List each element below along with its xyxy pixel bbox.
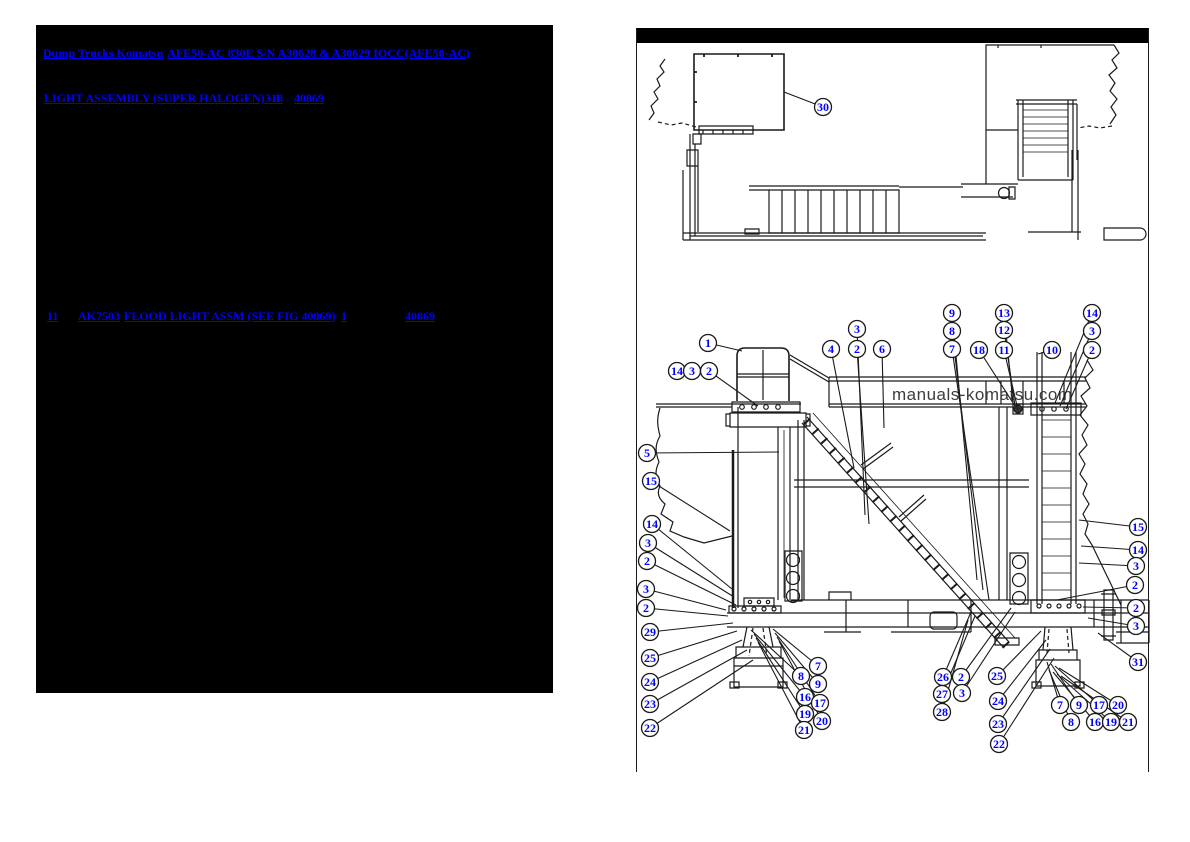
leader-line <box>646 589 726 610</box>
svg-text:10: 10 <box>1046 343 1058 357</box>
svg-text:17: 17 <box>814 696 826 710</box>
callout-19[interactable]: 19 <box>1103 714 1120 731</box>
leader-line <box>650 631 737 658</box>
svg-text:3: 3 <box>1089 324 1095 338</box>
svg-text:31: 31 <box>1132 655 1144 669</box>
callout-31[interactable]: 31 <box>1130 654 1147 671</box>
svg-text:3: 3 <box>1133 619 1139 633</box>
svg-text:27: 27 <box>936 687 948 701</box>
svg-text:9: 9 <box>815 677 821 691</box>
svg-text:28: 28 <box>936 705 948 719</box>
leader-line <box>651 481 730 531</box>
callout-15[interactable]: 15 <box>643 473 660 490</box>
callout-20[interactable]: 20 <box>814 713 831 730</box>
torn-edge-frame <box>656 408 732 543</box>
callout-6[interactable]: 6 <box>874 341 891 358</box>
part-row-qty-link[interactable]: 1 <box>341 309 347 324</box>
callout-8[interactable]: 8 <box>944 323 961 340</box>
callout-8[interactable]: 8 <box>793 668 810 685</box>
svg-text:2: 2 <box>958 670 964 684</box>
svg-text:7: 7 <box>815 659 821 673</box>
svg-text:2: 2 <box>706 364 712 378</box>
svg-text:8: 8 <box>949 324 955 338</box>
svg-text:14: 14 <box>671 364 683 378</box>
callout-13[interactable]: 13 <box>996 305 1013 322</box>
svg-text:25: 25 <box>991 669 1003 683</box>
svg-text:21: 21 <box>798 723 810 737</box>
svg-text:4: 4 <box>828 342 834 356</box>
leader-line <box>857 349 869 524</box>
callout-20[interactable]: 20 <box>1110 697 1127 714</box>
callout-17[interactable]: 17 <box>812 695 829 712</box>
leader-line <box>999 658 1054 744</box>
svg-text:8: 8 <box>798 669 804 683</box>
svg-text:30: 30 <box>817 100 829 114</box>
svg-text:20: 20 <box>816 714 828 728</box>
leader-line <box>952 331 983 590</box>
callout-21[interactable]: 21 <box>1120 714 1137 731</box>
svg-text:26: 26 <box>937 670 949 684</box>
callout-14[interactable]: 14 <box>1084 305 1101 322</box>
svg-text:2: 2 <box>643 601 649 615</box>
svg-text:15: 15 <box>645 474 657 488</box>
svg-text:3: 3 <box>959 686 965 700</box>
torn-edge-body-right <box>1079 360 1121 605</box>
svg-text:3: 3 <box>854 322 860 336</box>
callout-25[interactable]: 25 <box>989 668 1006 685</box>
callout-3[interactable]: 3 <box>638 581 655 598</box>
leader-line <box>1066 350 1092 409</box>
part-row-item-number-link[interactable]: 11 <box>47 309 58 324</box>
svg-text:14: 14 <box>646 517 658 531</box>
callout-23[interactable]: 23 <box>642 696 659 713</box>
part-row-description-link[interactable]: FLOOD LIGHT ASSM (SEE FIG 40869) <box>124 309 335 324</box>
callout-15[interactable]: 15 <box>1130 519 1147 536</box>
callout-2[interactable]: 2 <box>638 600 655 617</box>
svg-text:23: 23 <box>992 717 1004 731</box>
svg-text:22: 22 <box>993 737 1005 751</box>
leader-line <box>652 524 732 589</box>
callout-29[interactable]: 29 <box>642 624 659 641</box>
svg-text:2: 2 <box>1132 578 1138 592</box>
svg-text:9: 9 <box>949 306 955 320</box>
svg-text:17: 17 <box>1093 698 1105 712</box>
svg-text:2: 2 <box>1133 601 1139 615</box>
callout-2[interactable]: 2 <box>953 669 970 686</box>
svg-text:15: 15 <box>1132 520 1144 534</box>
callout-3[interactable]: 3 <box>684 363 701 380</box>
callout-9[interactable]: 9 <box>1071 697 1088 714</box>
callout-24[interactable]: 24 <box>990 693 1007 710</box>
callout-2[interactable]: 2 <box>1128 600 1145 617</box>
callout-18[interactable]: 18 <box>971 342 988 359</box>
leader-line <box>648 543 734 597</box>
callout-7[interactable]: 7 <box>1052 697 1069 714</box>
callout-10[interactable]: 10 <box>1044 342 1061 359</box>
svg-text:3: 3 <box>645 536 651 550</box>
leader-line <box>650 660 753 728</box>
callout-3[interactable]: 3 <box>954 685 971 702</box>
svg-text:29: 29 <box>644 625 656 639</box>
breadcrumb: Dump Trucks Komatsu AFE50-AC 830E S/N A3… <box>43 44 470 62</box>
callout-3[interactable]: 3 <box>849 321 866 338</box>
figure-viewer-panel: manuals-komatsu.com 30114324326987181312… <box>636 28 1149 772</box>
svg-text:20: 20 <box>1112 698 1124 712</box>
leader-line <box>650 623 733 632</box>
breadcrumb-link-model-family[interactable]: Dump Trucks Komatsu <box>43 46 163 60</box>
leader-line <box>882 349 884 428</box>
torn-edge-right <box>1109 45 1119 124</box>
callout-27[interactable]: 27 <box>934 686 951 703</box>
callout-22[interactable]: 22 <box>642 720 659 737</box>
svg-text:14: 14 <box>1132 543 1144 557</box>
breadcrumb-link-model[interactable]: AFE50-AC 830E S/N A30628 & A30629 IOCC(A… <box>167 46 470 60</box>
leader-line <box>1057 585 1135 600</box>
figure-viewer-toolbar <box>637 28 1148 43</box>
part-row-fig-link[interactable]: 40869 <box>405 309 435 324</box>
callout-28[interactable]: 28 <box>934 704 951 721</box>
leader-line <box>998 640 1046 701</box>
callout-3[interactable]: 3 <box>1128 558 1145 575</box>
svg-text:2: 2 <box>854 342 860 356</box>
callout-1[interactable]: 1 <box>700 335 717 352</box>
svg-text:2: 2 <box>1089 343 1095 357</box>
callout-26[interactable]: 26 <box>935 669 952 686</box>
callout-7[interactable]: 7 <box>810 658 827 675</box>
callout-12[interactable]: 12 <box>996 322 1013 339</box>
cab-outline <box>694 54 784 130</box>
callout-16[interactable]: 16 <box>1087 714 1104 731</box>
assembly-fig-link[interactable]: 40869 <box>294 91 324 106</box>
callout-23[interactable]: 23 <box>990 716 1007 733</box>
callout-2[interactable]: 2 <box>639 553 656 570</box>
svg-text:7: 7 <box>1057 698 1063 712</box>
svg-text:19: 19 <box>1105 715 1117 729</box>
callout-4[interactable]: 4 <box>823 341 840 358</box>
callout-14[interactable]: 14 <box>644 516 661 533</box>
svg-text:12: 12 <box>998 323 1010 337</box>
svg-text:18: 18 <box>973 343 985 357</box>
callout-24[interactable]: 24 <box>642 674 659 691</box>
callout-3[interactable]: 3 <box>1084 323 1101 340</box>
callout-19[interactable]: 19 <box>797 706 814 723</box>
torn-edge-left <box>649 59 665 120</box>
svg-text:7: 7 <box>949 342 955 356</box>
svg-text:22: 22 <box>644 721 656 735</box>
callout-9[interactable]: 9 <box>810 676 827 693</box>
leader-line <box>646 608 728 616</box>
svg-text:1: 1 <box>705 336 711 350</box>
svg-text:16: 16 <box>1089 715 1101 729</box>
callout-3[interactable]: 3 <box>1128 618 1145 635</box>
ladder-plan-view <box>1016 100 1077 180</box>
callout-11[interactable]: 11 <box>996 342 1013 359</box>
callout-2[interactable]: 2 <box>1084 342 1101 359</box>
part-row-part-number-link[interactable]: AK7503 <box>78 309 120 324</box>
callout-9[interactable]: 9 <box>944 305 961 322</box>
callout-22[interactable]: 22 <box>991 736 1008 753</box>
svg-text:5: 5 <box>644 446 650 460</box>
svg-text:14: 14 <box>1086 306 1098 320</box>
svg-text:24: 24 <box>992 694 1004 708</box>
svg-text:3: 3 <box>689 364 695 378</box>
callout-8[interactable]: 8 <box>1063 714 1080 731</box>
svg-text:21: 21 <box>1122 715 1134 729</box>
svg-text:11: 11 <box>998 343 1009 357</box>
callout-3[interactable]: 3 <box>640 535 657 552</box>
svg-text:3: 3 <box>1133 559 1139 573</box>
callout-5[interactable]: 5 <box>639 445 656 462</box>
svg-text:3: 3 <box>643 582 649 596</box>
svg-text:25: 25 <box>644 651 656 665</box>
parts-list-panel: Dump Trucks Komatsu AFE50-AC 830E S/N A3… <box>36 25 553 693</box>
assembly-page-link[interactable]: 318 <box>265 91 283 106</box>
svg-text:13: 13 <box>998 306 1010 320</box>
svg-text:24: 24 <box>644 675 656 689</box>
assembly-heading: LIGHT ASSEMBLY (SUPER HALOGEN) - 1 318 4… <box>44 91 544 107</box>
watermark-text: manuals-komatsu.com <box>892 385 1073 404</box>
callout-25[interactable]: 25 <box>642 650 659 667</box>
svg-text:8: 8 <box>1068 715 1074 729</box>
deck-grill <box>769 190 899 233</box>
svg-text:16: 16 <box>799 690 811 704</box>
callout-2[interactable]: 2 <box>849 341 866 358</box>
leader-line <box>647 452 779 453</box>
svg-text:19: 19 <box>799 707 811 721</box>
svg-text:9: 9 <box>1076 698 1082 712</box>
svg-text:23: 23 <box>644 697 656 711</box>
callout-labels: 3011432432698718131211101432515143232292… <box>638 99 1147 753</box>
leader-line <box>647 561 736 605</box>
svg-text:6: 6 <box>879 342 885 356</box>
exploded-parts-diagram: manuals-komatsu.com 30114324326987181312… <box>637 43 1150 772</box>
assembly-name-link[interactable]: LIGHT ASSEMBLY (SUPER HALOGEN) - 1 <box>44 91 281 106</box>
callout-17[interactable]: 17 <box>1091 697 1108 714</box>
callout-30[interactable]: 30 <box>815 99 832 116</box>
plan-view-drawing <box>649 45 1146 240</box>
svg-text:2: 2 <box>644 554 650 568</box>
table-row: 11 AK7503 FLOOD LIGHT ASSM (SEE FIG 4086… <box>36 309 553 325</box>
support-column <box>738 407 804 608</box>
callout-2[interactable]: 2 <box>1127 577 1144 594</box>
callout-7[interactable]: 7 <box>944 341 961 358</box>
callout-14[interactable]: 14 <box>1130 542 1147 559</box>
pipe <box>1101 590 1116 640</box>
callout-2[interactable]: 2 <box>701 363 718 380</box>
callout-21[interactable]: 21 <box>796 722 813 739</box>
